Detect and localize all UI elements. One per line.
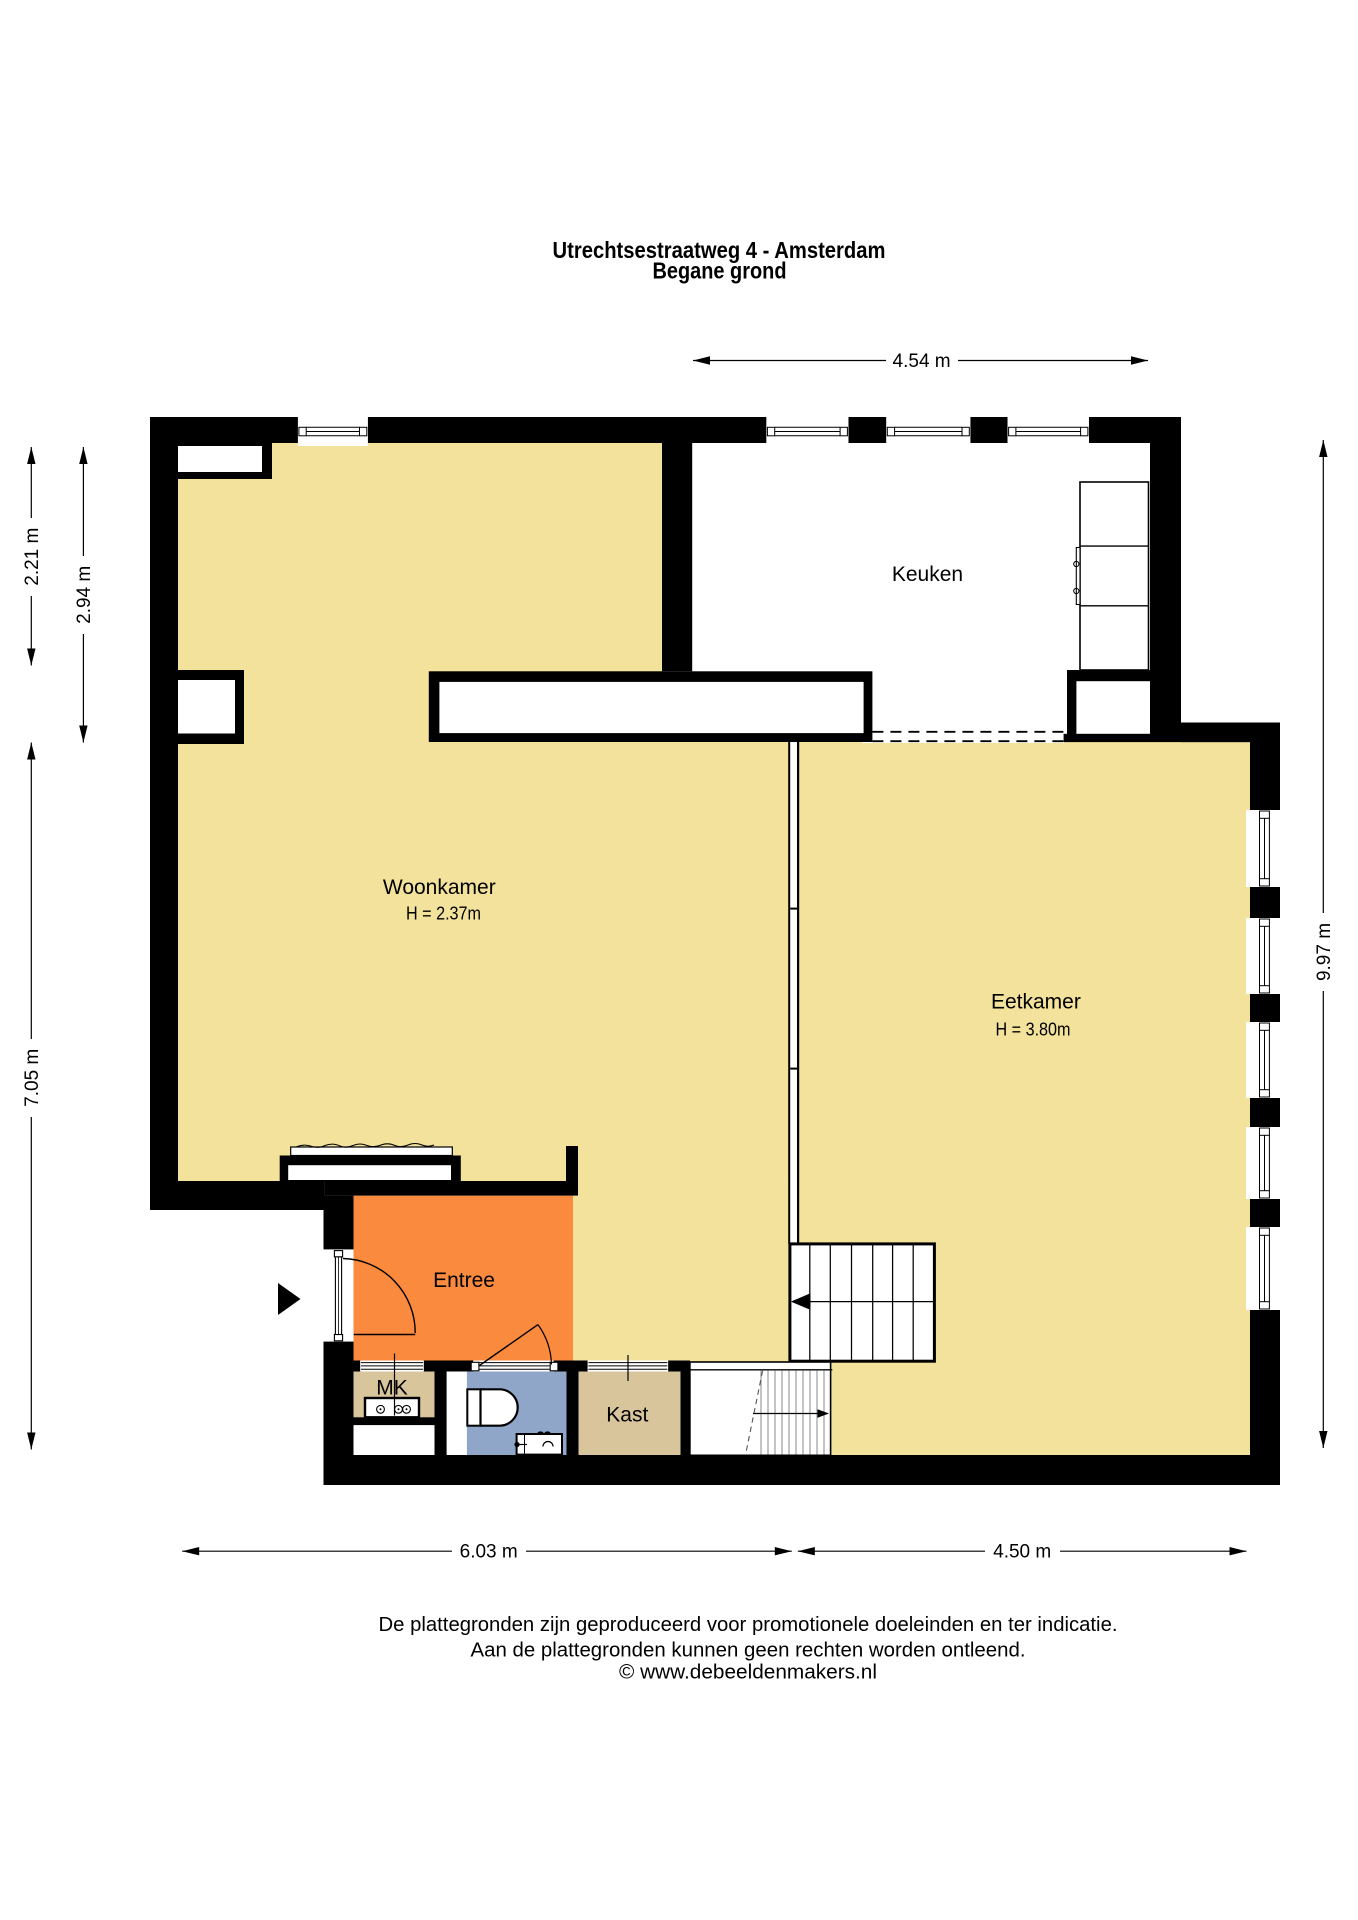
svg-text:6.03 m: 6.03 m xyxy=(460,1542,518,1563)
svg-text:De plattegronden zijn geproduc: De plattegronden zijn geproduceerd voor … xyxy=(379,1614,1118,1636)
svg-text:9.97 m: 9.97 m xyxy=(1314,923,1335,981)
svg-text:Kast: Kast xyxy=(606,1404,648,1427)
svg-text:4.50 m: 4.50 m xyxy=(993,1542,1051,1563)
svg-text:© www.debeeldenmakers.nl: © www.debeeldenmakers.nl xyxy=(619,1662,877,1684)
svg-text:Eetkamer: Eetkamer xyxy=(991,991,1081,1014)
svg-text:Woonkamer: Woonkamer xyxy=(383,876,496,899)
svg-text:4.54 m: 4.54 m xyxy=(893,351,951,372)
svg-text:H = 2.37m: H = 2.37m xyxy=(406,903,481,924)
svg-text:2.94 m: 2.94 m xyxy=(74,566,95,624)
svg-text:7.05 m: 7.05 m xyxy=(22,1049,43,1107)
svg-text:Entree: Entree xyxy=(433,1269,495,1292)
svg-text:H = 3.80m: H = 3.80m xyxy=(996,1019,1071,1040)
svg-text:Begane grond: Begane grond xyxy=(653,258,787,284)
svg-text:Keuken: Keuken xyxy=(892,563,963,586)
svg-text:2.21 m: 2.21 m xyxy=(22,528,43,586)
svg-text:MK: MK xyxy=(376,1377,408,1400)
svg-text:Aan de plattegronden kunnen ge: Aan de plattegronden kunnen geen rechten… xyxy=(471,1640,1026,1662)
